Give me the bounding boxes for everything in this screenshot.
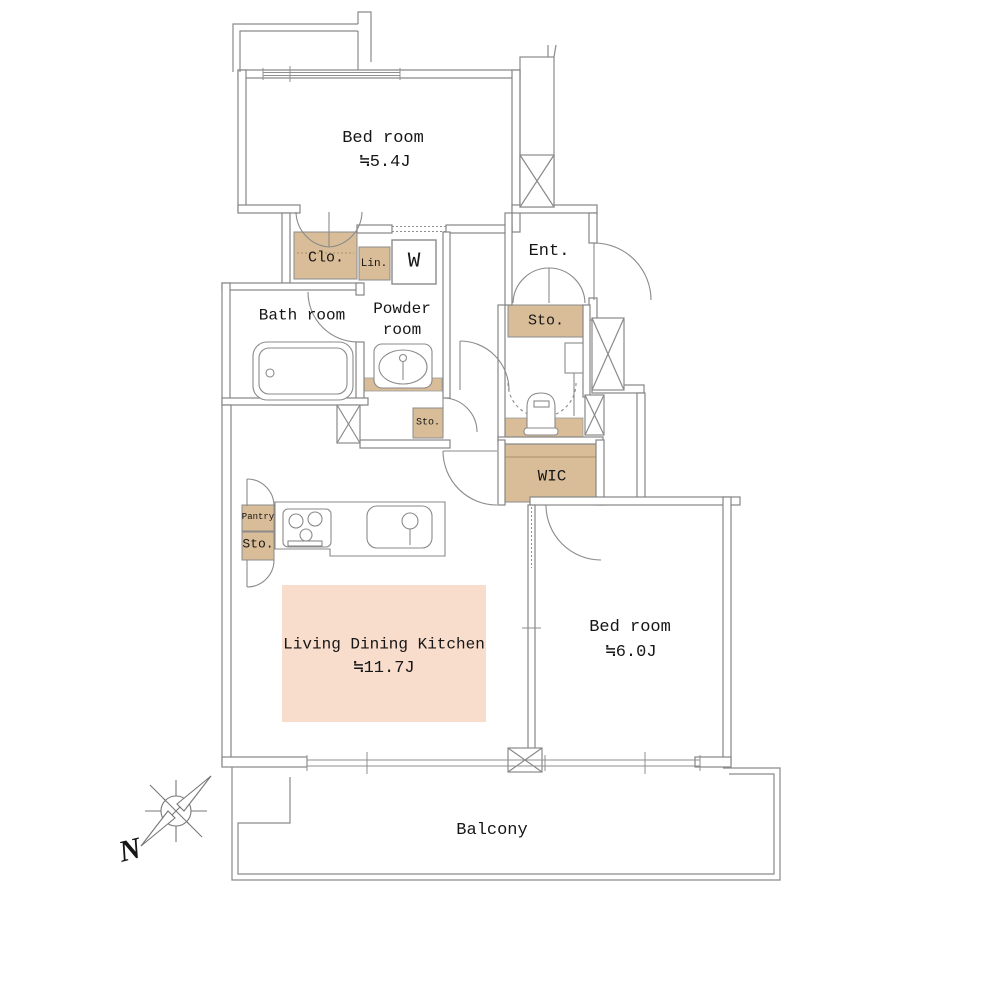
pantry-label: Pantry [242, 512, 274, 524]
wic-label: WIC [538, 467, 567, 488]
bathtub-icon [253, 342, 353, 400]
ldk-area: ≒11.7J [353, 658, 414, 680]
washbasin-icon [374, 344, 432, 388]
balcony-label: Balcony [456, 820, 527, 842]
storage-entrance-label: Sto. [528, 311, 564, 331]
ldk-label: Living Dining Kitchen [283, 635, 485, 656]
washer-label: W [408, 248, 421, 275]
powder-room-label: Powder room [356, 299, 448, 341]
linen-label: Lin. [361, 257, 387, 271]
storage-powder-label: Sto. [416, 417, 440, 430]
closet-label: Clo. [308, 248, 344, 268]
sink-icon [367, 506, 432, 548]
entrance-label: Ent. [529, 241, 570, 263]
floor-plan-page: Bed room ≒5.4J Ent. Sto. Clo. Lin. W Bat… [0, 0, 1000, 1000]
storage-kitchen-label: Sto. [242, 537, 273, 554]
compass-icon [141, 776, 211, 846]
alcove-lines [233, 12, 371, 72]
bathroom-label: Bath room [259, 306, 345, 327]
bedroom2-label: Bed room [589, 617, 671, 639]
bedroom1-area: ≒5.4J [359, 152, 410, 174]
floor-plan-drawing [0, 0, 1000, 1000]
bedroom1-label: Bed room [342, 128, 424, 150]
bedroom2-area: ≒6.0J [605, 642, 656, 664]
